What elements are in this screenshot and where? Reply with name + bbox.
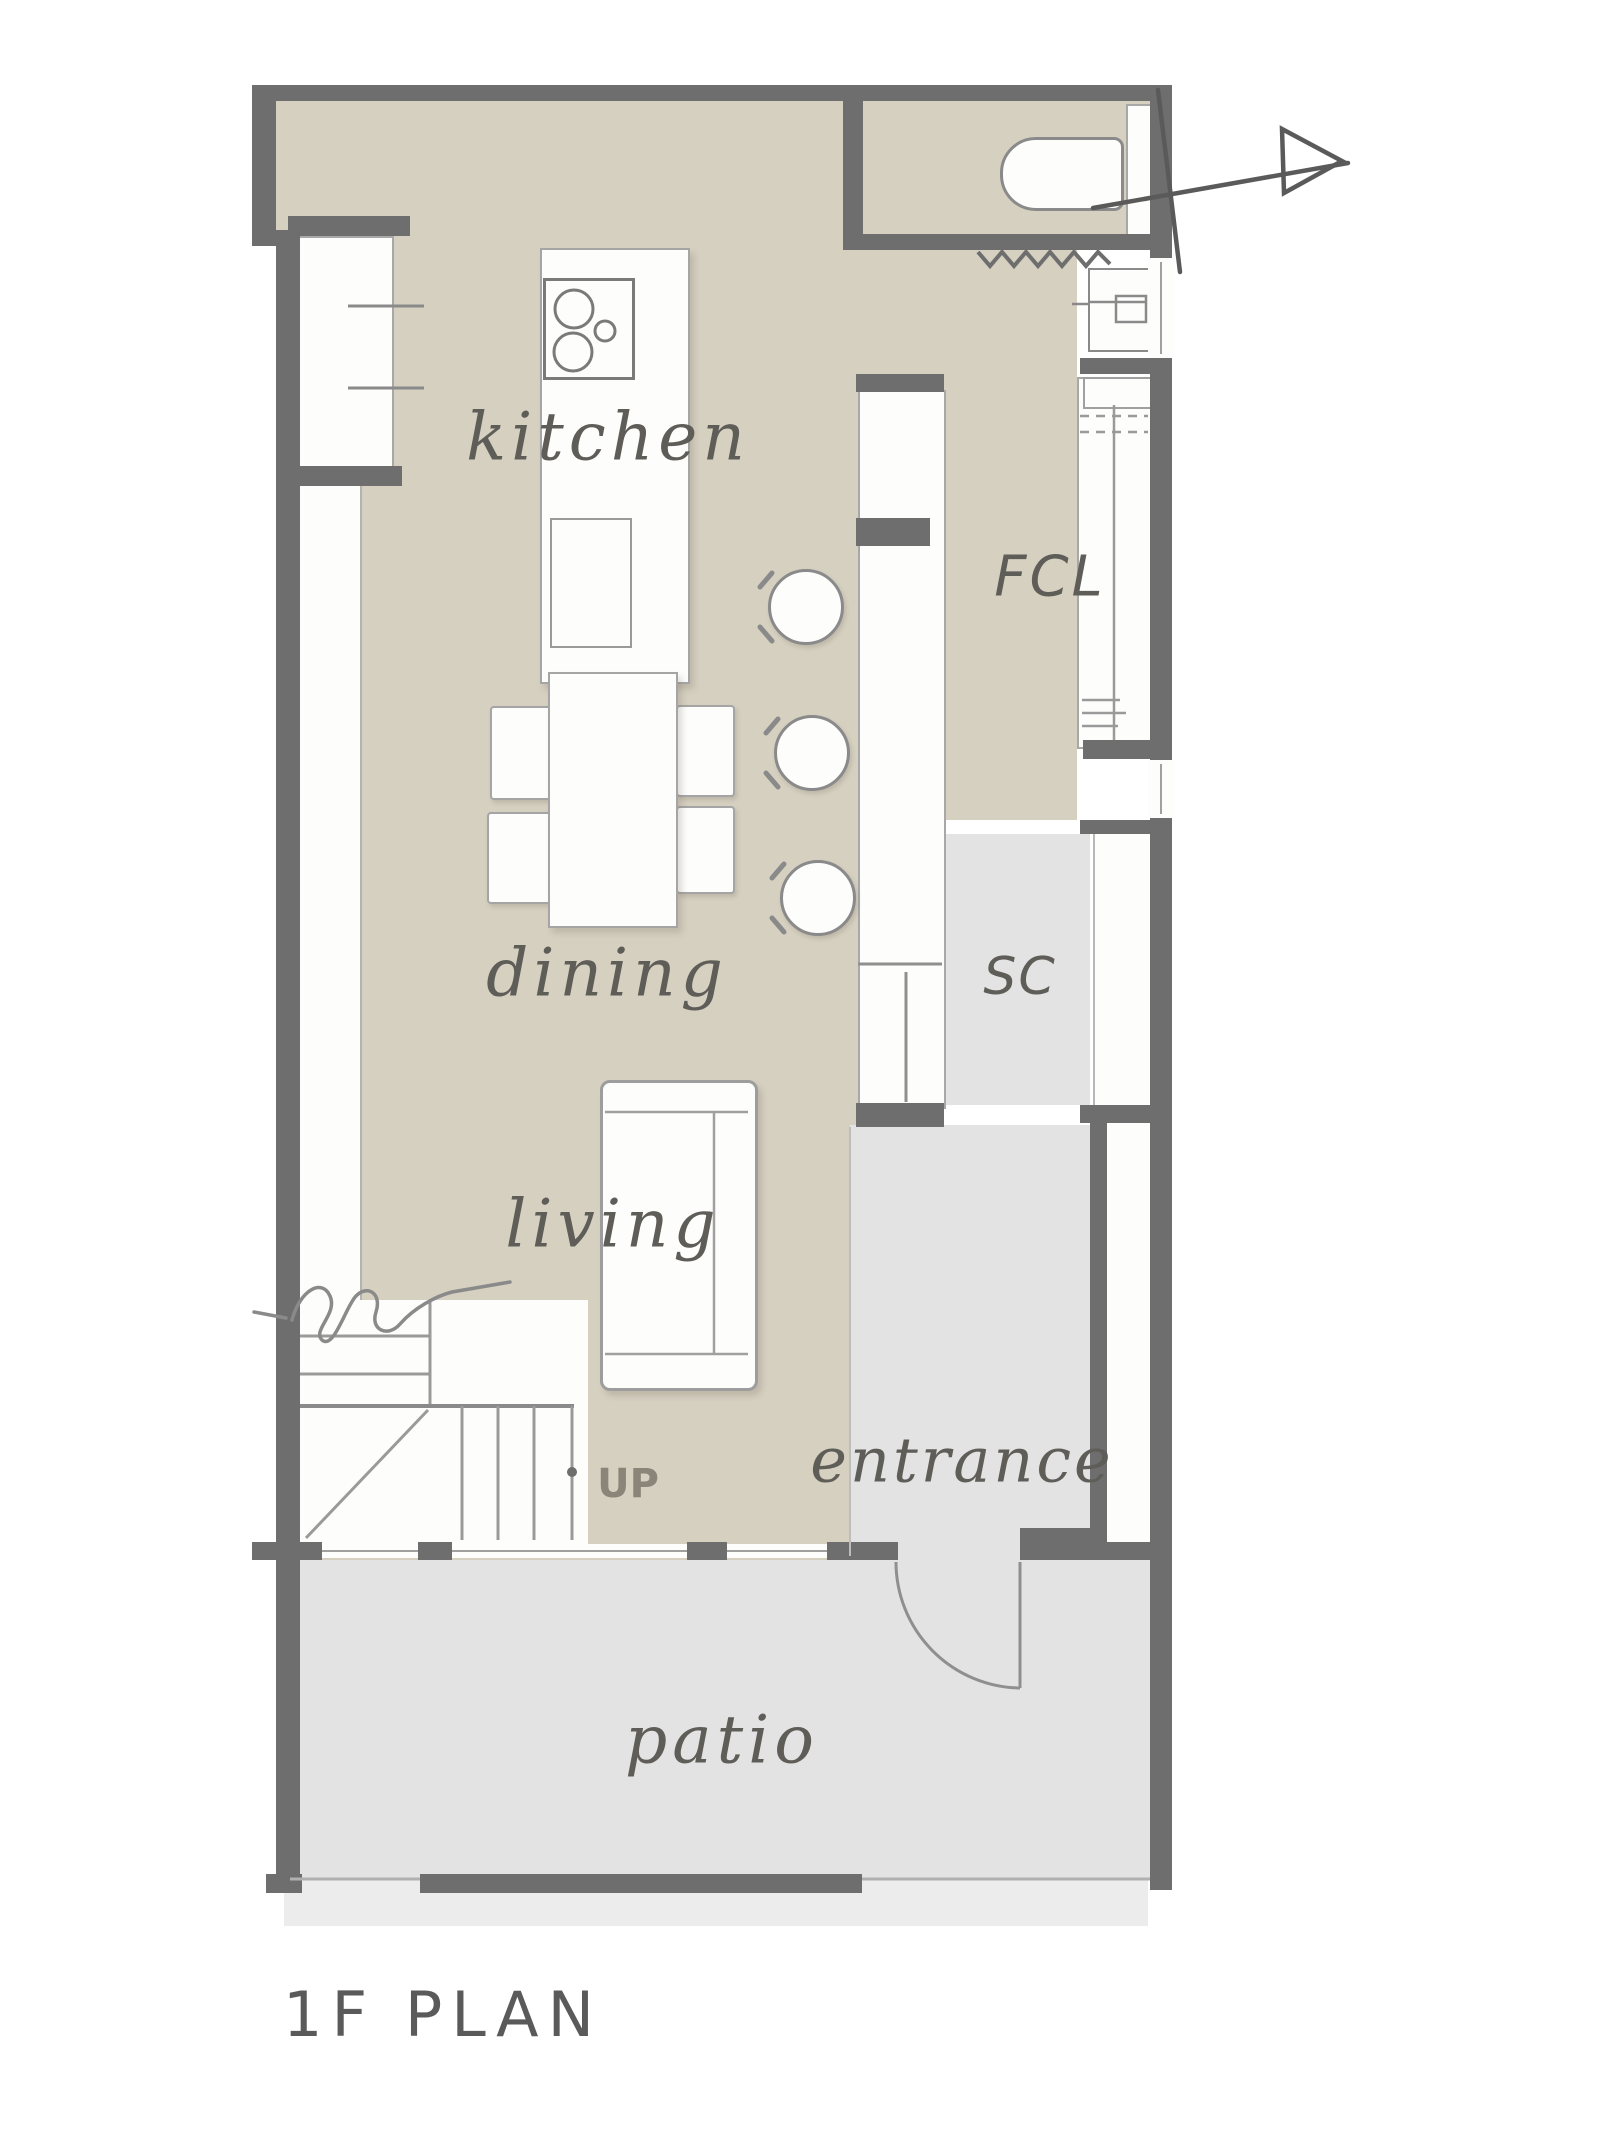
dining-chair [490, 706, 552, 800]
dining-chair [676, 705, 735, 797]
wall-south [827, 1542, 898, 1560]
room-label-entrance: entrance [810, 1424, 1113, 1497]
wall-south [687, 1542, 727, 1560]
room-label-patio: patio [625, 1702, 819, 1779]
toilet-icon [1000, 137, 1124, 211]
window [322, 1544, 418, 1558]
wall-counter-cap-mid [856, 518, 930, 546]
stool [768, 569, 844, 645]
wall-counter-cap-bottom [856, 1103, 944, 1127]
window [1148, 760, 1174, 818]
wall-kitchen-stub [288, 216, 410, 236]
wall-fcl-top [1080, 358, 1172, 374]
stairs-icon [298, 1300, 588, 1558]
dining-chair [676, 806, 735, 894]
floor-plan: kitchen FCL dining SC living UP entrance… [0, 0, 1600, 2136]
wall-south [418, 1542, 452, 1560]
washbasin-icon [1088, 268, 1152, 352]
wall-south [1092, 1542, 1152, 1560]
wall-left-upper [252, 85, 276, 245]
window [452, 1544, 687, 1558]
wall-south [1020, 1528, 1092, 1560]
wall-toilet-side [843, 100, 863, 250]
dining-chair [487, 812, 553, 904]
floor-door-gap [898, 1542, 1020, 1560]
stool [780, 860, 856, 936]
dining-table [548, 672, 678, 928]
wall-patio-south [420, 1874, 862, 1893]
stool [774, 715, 850, 791]
window [1148, 258, 1174, 358]
page-title: 1F PLAN [283, 1978, 603, 2051]
wall-left-foot [266, 1874, 302, 1893]
wall-side-strip [290, 486, 362, 1300]
wall-cabinet-cap [288, 466, 402, 486]
sink-icon [550, 518, 632, 648]
stove-icon [543, 278, 635, 380]
room-label-kitchen: kitchen [466, 399, 750, 476]
label-up: UP [597, 1461, 659, 1507]
wall-toilet-bottom [843, 234, 1153, 250]
window [727, 1544, 827, 1558]
wall-sc-top [1080, 820, 1158, 834]
wall-fcl-bottom [1083, 740, 1172, 759]
wall-top [252, 85, 1172, 101]
room-label-fcl: FCL [994, 545, 1106, 610]
room-label-living: living [505, 1186, 720, 1263]
kitchen-wall-cabinet [290, 236, 394, 474]
room-label-sc: SC [983, 947, 1056, 1007]
wall-south [252, 1542, 322, 1560]
sc-shelf [1093, 834, 1152, 1105]
room-label-dining: dining [486, 935, 728, 1012]
wall-counter-cap-top [856, 374, 944, 392]
hall-counter [858, 390, 946, 1109]
fcl-upper-box [1083, 377, 1157, 409]
